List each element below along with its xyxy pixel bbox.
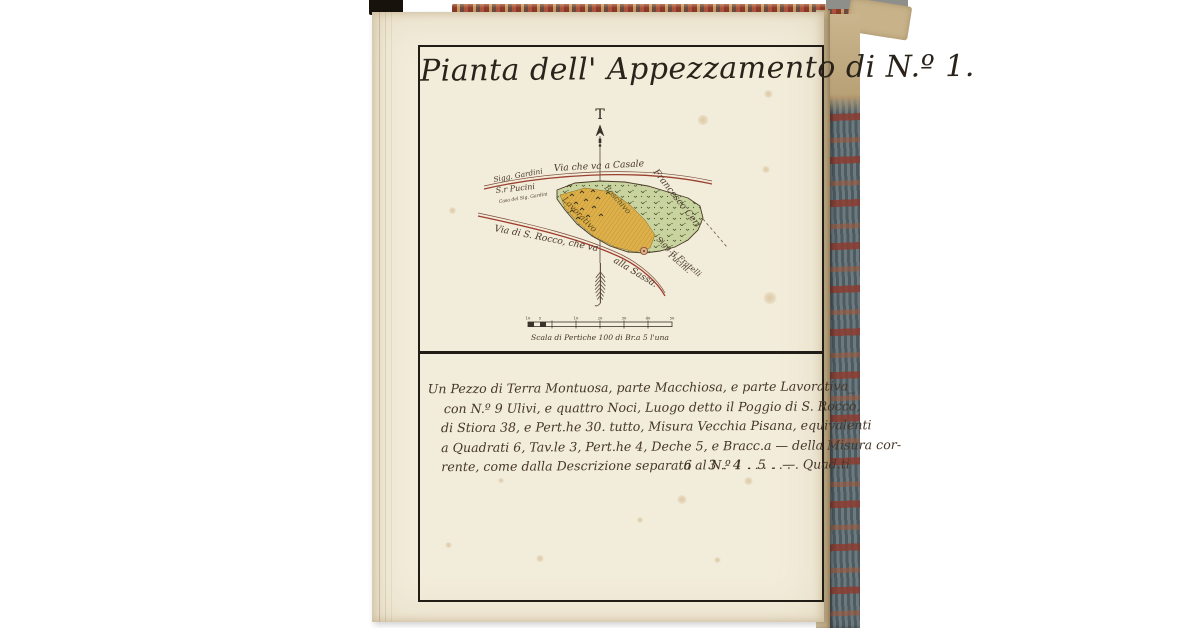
plate-title: Pianta dell' Appezzamento di N.º 1. — [420, 50, 822, 89]
scale-tick: 10 — [574, 316, 579, 321]
gutter-fold-line — [385, 12, 386, 622]
scale-tick: 30 — [622, 316, 627, 321]
scale-tick: 10 — [526, 316, 531, 321]
gutter-fold-line — [391, 12, 392, 622]
parcel-description: Un Pezzo di Terra Montuosa, parte Macchi… — [428, 377, 791, 477]
foxing-spot — [449, 207, 456, 214]
description-line: Un Pezzo di Terra Montuosa, parte Macchi… — [428, 377, 790, 399]
scale-caption: Scala di Pertiche 100 di Br.a 5 l'una — [531, 333, 669, 342]
scale-tick: 50 — [670, 316, 675, 321]
area-total-value: 6 . 3 . 4 . 5 . — — [684, 456, 797, 476]
foxing-spot — [677, 495, 687, 504]
road-bottom-label-2: alla Sassa. — [611, 255, 659, 290]
scale-tick: 20 — [598, 316, 603, 321]
scale-bar: 10 5 10 20 30 40 50 Scala di Pertiche 10… — [526, 316, 675, 343]
foxing-spot — [763, 292, 777, 304]
foxing-spot — [744, 477, 753, 485]
south-tassel — [595, 263, 606, 306]
scanned-atlas-page: Pianta dell' Appezzamento di N.º 1. T — [0, 0, 1200, 628]
foxing-spot — [637, 517, 643, 523]
scale-tick: 40 — [646, 316, 651, 321]
description-line: a Quadrati 6, Tav.le 3, Pert.he 4, Deche… — [428, 435, 790, 457]
foxing-spot — [697, 115, 709, 125]
foxing-spot — [445, 542, 452, 548]
scale-tick: 5 — [539, 316, 542, 321]
description-line: di Stiora 38, e Pert.he 30. tutto, Misur… — [428, 416, 790, 438]
owner-left-label-2: S.r Pucini — [495, 182, 536, 195]
boundary-dashed-line — [703, 219, 727, 247]
north-letter: T — [595, 107, 605, 123]
foxing-spot — [498, 478, 504, 483]
section-divider-rule — [420, 351, 822, 354]
foxing-spot — [764, 90, 773, 98]
parcel-map: T — [470, 100, 760, 350]
building-symbol — [640, 247, 647, 254]
foxing-spot — [762, 166, 770, 173]
description-line: con N.º 9 Ulivi, e quattro Noci, Luogo d… — [428, 396, 790, 418]
owner-left-label-1: Sigg. Gardini — [493, 166, 543, 183]
gutter-fold-line — [379, 12, 380, 622]
foxing-spot — [536, 555, 544, 562]
foxing-spot — [714, 557, 721, 563]
